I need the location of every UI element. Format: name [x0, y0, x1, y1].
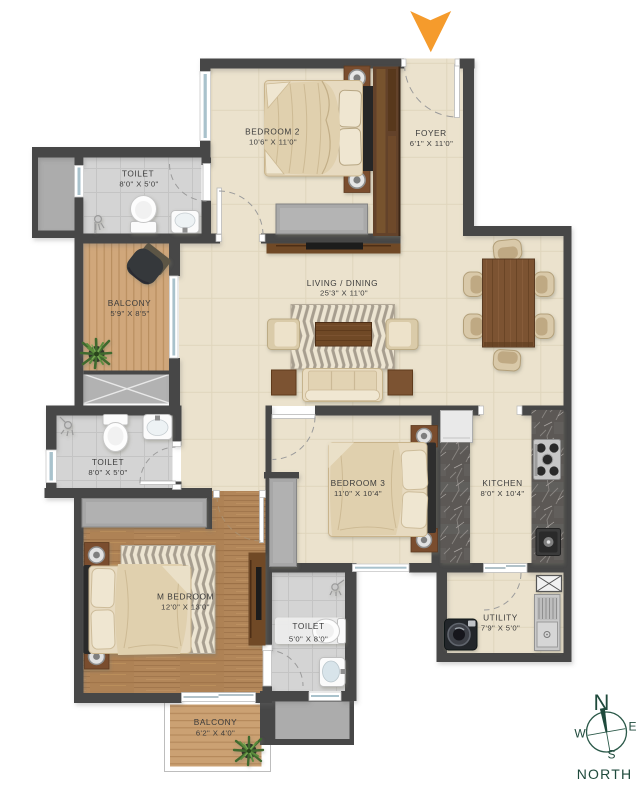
svg-text:E: E — [628, 720, 636, 734]
svg-text:S: S — [607, 748, 615, 762]
svg-text:8'0" X 5'0": 8'0" X 5'0" — [88, 468, 127, 477]
svg-text:10'6" X 11'0": 10'6" X 11'0" — [249, 137, 297, 146]
svg-text:8'0" X 10'4": 8'0" X 10'4" — [481, 489, 525, 498]
svg-text:M BEDROOM: M BEDROOM — [157, 592, 214, 602]
svg-text:TOILET: TOILET — [92, 457, 124, 467]
svg-text:UTILITY: UTILITY — [483, 612, 518, 622]
svg-text:7'9" X 5'0": 7'9" X 5'0" — [481, 623, 520, 632]
svg-text:LIVING / DINING: LIVING / DINING — [307, 278, 378, 288]
svg-text:5'9" X 8'5": 5'9" X 8'5" — [110, 309, 149, 318]
svg-text:KITCHEN: KITCHEN — [482, 478, 522, 488]
svg-text:NORTH: NORTH — [577, 766, 633, 782]
svg-text:N: N — [594, 690, 610, 715]
svg-text:W: W — [574, 727, 586, 741]
svg-text:TOILET: TOILET — [122, 169, 154, 179]
svg-text:BEDROOM 2: BEDROOM 2 — [245, 127, 300, 137]
svg-text:12'0" X 13'0": 12'0" X 13'0" — [161, 602, 210, 611]
svg-text:6'1" X 11'0": 6'1" X 11'0" — [410, 139, 453, 148]
svg-text:8'0" X 5'0": 8'0" X 5'0" — [119, 179, 158, 188]
svg-text:BALCONY: BALCONY — [108, 298, 152, 308]
svg-text:FOYER: FOYER — [415, 128, 446, 138]
svg-text:25'3" X 11'0": 25'3" X 11'0" — [320, 289, 368, 298]
svg-text:11'0" X 10'4": 11'0" X 10'4" — [334, 489, 382, 498]
svg-text:TOILET: TOILET — [292, 621, 324, 631]
svg-text:6'2" X 4'0": 6'2" X 4'0" — [196, 729, 235, 738]
svg-text:BEDROOM 3: BEDROOM 3 — [331, 478, 386, 488]
svg-text:BALCONY: BALCONY — [194, 717, 238, 727]
svg-text:5'0" X 8'0": 5'0" X 8'0" — [289, 634, 328, 643]
